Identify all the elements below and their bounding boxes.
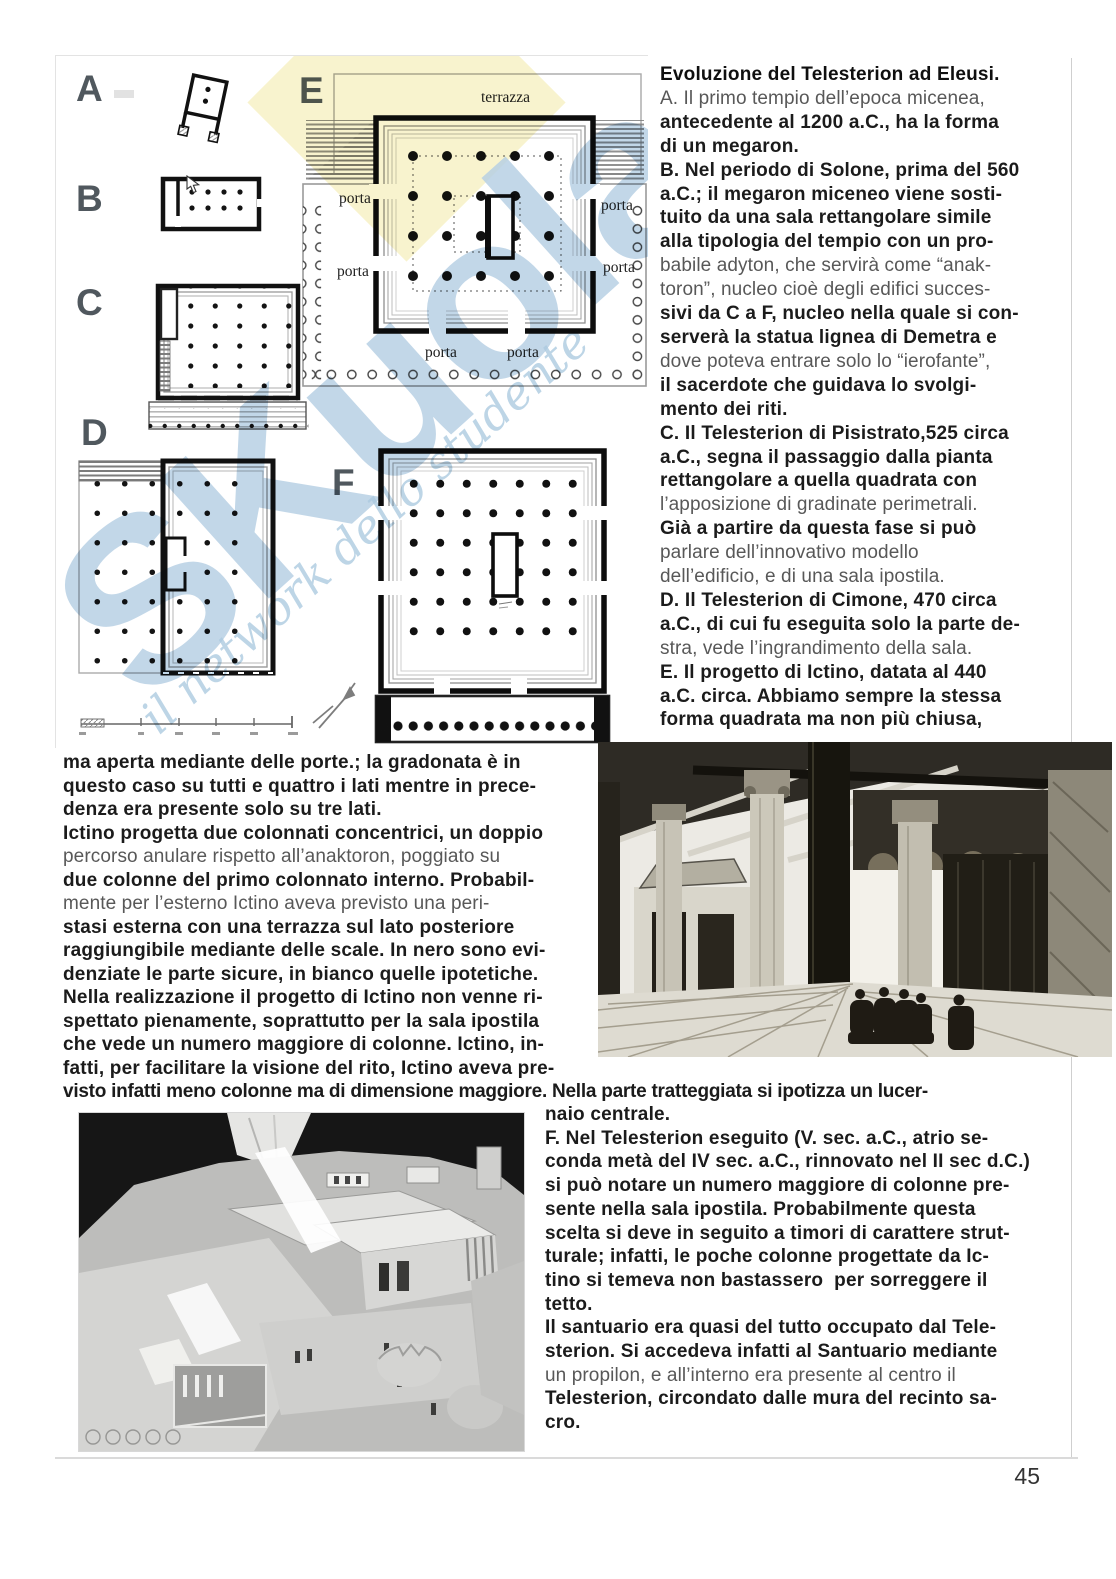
text-line: Ictino progetta due colonnati concentric… [63,822,593,846]
text-line: a.C. circa. Abbiamo sempre la stessa [660,685,1070,709]
text-line: B. Nel periodo di Solone, prima del 560 [660,159,1070,183]
plan-label-a: A [76,70,103,107]
text-line: tetto. [545,1293,1073,1317]
text-line: si può notare un numero maggiore di colo… [545,1174,1073,1198]
text-line: dell’edificio, e di una sala ipostila. [660,565,1070,589]
text-line: scelta si deve in seguito a timori di ca… [545,1222,1073,1246]
text-line: a.C.; il megaron miceneo viene sosti- [660,183,1070,207]
text-line: che vede un numero maggiore di colonne. … [63,1033,593,1057]
page-number: 45 [990,1463,1040,1490]
text-line: stasi esterna con una terrazza sul lato … [63,916,593,940]
text-line: forma quadrata ma non più chiusa, [660,708,1070,732]
plan-a-megaron [178,74,230,142]
text-line: rettangolare a quella quadrata con [660,469,1070,493]
text-line: ma aperta mediante delle porte.; la grad… [63,751,593,775]
porta-label: porta [601,197,633,214]
text-line: questo caso su tutti e quattro i lati me… [63,775,593,799]
plan-b-solonian-hall [163,176,262,229]
plan-label-e: E [299,72,324,109]
plans-figure: terrazza porta porta porta porta porta p… [55,55,648,748]
text-line: babile adyton, che servirà come “anak- [660,254,1070,278]
telesterion-interior-engraving-image [598,742,1112,1057]
scale-bar [79,716,298,735]
text-line: due colonne del primo colonnato interno.… [63,869,593,893]
text-line: stra, vede l’ingrandimento della sala. [660,637,1070,661]
plan-label-f: F [332,464,355,501]
text-line: Telesterion, circondato dalle mura del r… [545,1387,1073,1411]
text-line: turale; infatti, le poche colonne proget… [545,1245,1073,1269]
text-line: tuito da una sala rettangolare simile [660,206,1070,230]
text-line: Già a partire da questa fase si può [660,517,1070,541]
text-column-left-mid: ma aperta mediante delle porte.; la grad… [63,751,593,1080]
porta-label: porta [339,190,371,207]
text-line: F. Nel Telesterion eseguito (V. sec. a.C… [545,1127,1073,1151]
text-line: A. Il primo tempio dell’epoca micenea, [660,87,1070,111]
plan-e-iktinos-project [303,74,646,387]
text-line: alla tipologia del tempio con un pro- [660,230,1070,254]
text-line: C. Il Telesterion di Pisistrato,525 circ… [660,422,1070,446]
plan-f-executed-telesterion [374,451,611,742]
text-line: spettato pienamente, soprattutto per la … [63,1010,593,1034]
text-line: raggiungibile mediante delle scale. In n… [63,939,593,963]
text-line: sterion. Si accedeva infatti al Santuari… [545,1340,1073,1364]
text-line: mento dei riti. [660,398,1070,422]
text-line: denza era presente solo su tre lati. [63,798,593,822]
text-line: sente nella sala ipostila. Probabilmente… [545,1198,1073,1222]
porta-label: porta [603,259,635,276]
text-line: toron”, nucleo cioè degli edifici succes… [660,278,1070,302]
text-line: denziate le parte sicure, in bianco quel… [63,963,593,987]
text-line: E. Il progetto di Ictino, datata al 440 [660,661,1070,685]
plan-label-d: D [81,414,108,451]
text-column-right-top: Evoluzione del Telesterion ad Eleusi.A. … [660,63,1070,732]
text-line: a.C., segna il passaggio dalla pianta [660,446,1070,470]
text-line: percorso anulare rispetto all’anaktoron,… [63,845,593,869]
text-line: serverà la statua lignea di Demetra e [660,326,1070,350]
porta-label: porta [425,344,457,361]
text-line: un propilon, e all’interno era presente … [545,1364,1073,1388]
text-line: Nella realizzazione il progetto di Ictin… [63,986,593,1010]
north-arrow-icon [313,683,355,728]
text-line: fatti, per facilitare la visione del rit… [63,1057,593,1081]
plan-c-pisistratos [149,286,309,429]
text-column-right-bottom: naio centrale.F. Nel Telesterion eseguit… [545,1103,1073,1435]
text-line: dove poteva entrare solo lo “ierofante”, [660,350,1070,374]
text-line-full-width: visto infatti meno colonne ma di dimensi… [63,1081,928,1103]
porta-label: porta [337,263,369,280]
document-page: terrazza porta porta porta porta porta p… [0,0,1116,1579]
text-line: il sacerdote che guidava lo svolgi- [660,374,1070,398]
text-line: antecedente al 1200 a.C., ha la forma [660,111,1070,135]
scan-smudge [114,90,134,98]
text-line: conda metà del IV sec. a.C., rinnovato n… [545,1150,1073,1174]
plan-label-b: B [76,180,103,217]
plan-label-c: C [76,284,103,321]
text-line: naio centrale. [545,1103,1073,1127]
text-line: parlare dell’innovativo modello [660,541,1070,565]
text-line: D. Il Telesterion di Cimone, 470 circa [660,589,1070,613]
telesterion-plans-diagram: terrazza porta porta porta porta porta p… [56,56,648,748]
sanctuary-model-photo-image [78,1112,525,1452]
text-line: a.C., di cui fu eseguita solo la parte d… [660,613,1070,637]
text-line: mente per l’esterno Ictino aveva previst… [63,892,593,916]
text-line: Evoluzione del Telesterion ad Eleusi. [660,63,1070,87]
terrazza-label: terrazza [481,89,530,106]
text-line: tino si temeva non bastassero per sorreg… [545,1269,1073,1293]
plan-d-kimon [77,461,273,680]
text-line: sivi da C a F, nucleo nella quale si con… [660,302,1070,326]
text-line: cro. [545,1411,1073,1435]
footer-rule [55,1457,1078,1459]
text-line: di un megaron. [660,135,1070,159]
text-line: l’apposizione di gradinate perimetrali. [660,493,1070,517]
text-line: Il santuario era quasi del tutto occupat… [545,1316,1073,1340]
porta-label: porta [507,344,539,361]
